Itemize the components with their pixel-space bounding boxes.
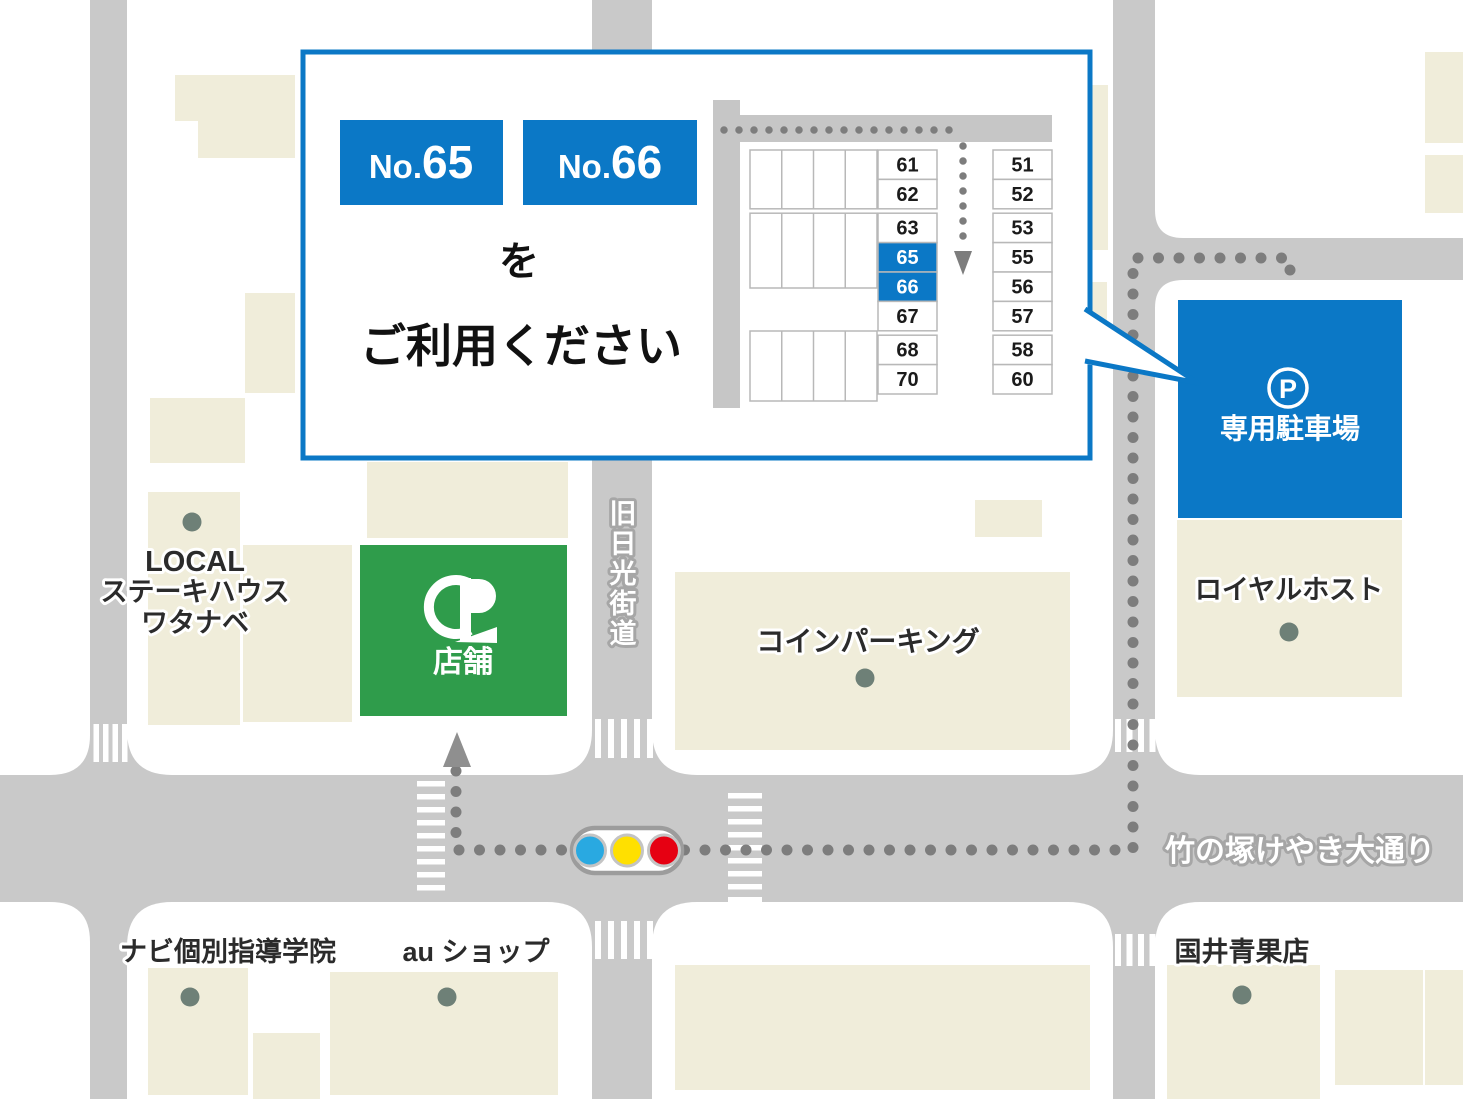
svg-text:68: 68	[896, 340, 918, 362]
building-royal-host	[1177, 520, 1402, 697]
traffic-light-red	[649, 835, 680, 866]
map-canvas: P 専用駐車場 店舗 旧 日 光 街 道 竹の塚けやき大通り LOCAL	[0, 0, 1463, 1099]
svg-text:61: 61	[896, 155, 918, 177]
city-block	[0, 902, 90, 1099]
store-label: 店舗	[433, 646, 493, 679]
building	[253, 1033, 320, 1099]
callout-box	[303, 52, 1090, 458]
building	[1335, 970, 1423, 1085]
svg-text:63: 63	[896, 218, 918, 240]
crosswalk	[417, 781, 445, 891]
svg-text:66: 66	[896, 277, 918, 299]
building	[1425, 155, 1463, 213]
svg-text:旧: 旧	[610, 499, 637, 529]
building	[175, 75, 295, 121]
building	[198, 121, 295, 158]
parking-icon-letter: P	[1279, 374, 1297, 404]
svg-text:55: 55	[1011, 247, 1033, 269]
traffic-light-blue	[575, 835, 606, 866]
label-au-shop: au ショップ	[402, 937, 550, 967]
svg-text:日: 日	[610, 529, 637, 559]
marker-dot	[438, 988, 457, 1007]
marker-dot	[1233, 986, 1252, 1005]
traffic-light-yellow	[612, 835, 643, 866]
label-coin-parking: コインパーキング	[756, 626, 979, 657]
label-steakhouse-line1: LOCAL	[145, 546, 245, 578]
svg-text:60: 60	[1011, 369, 1033, 391]
building-navi-school	[148, 968, 248, 1095]
diagram-unnumbered-stalls	[750, 150, 877, 401]
svg-text:道: 道	[610, 618, 637, 649]
svg-text:53: 53	[1011, 218, 1033, 240]
building	[1425, 970, 1463, 1085]
building	[245, 293, 295, 393]
svg-text:62: 62	[896, 184, 918, 206]
traffic-light	[572, 828, 682, 873]
marker-dot	[1280, 623, 1299, 642]
city-block	[1155, 0, 1463, 238]
svg-text:65: 65	[896, 247, 918, 269]
building	[1425, 52, 1463, 143]
marker-dot	[181, 988, 200, 1007]
label-kunii-seika: 国井青果店	[1175, 937, 1310, 967]
diagram-left-wall	[713, 100, 740, 408]
building	[243, 545, 352, 722]
svg-text:52: 52	[1011, 184, 1033, 206]
parking-lot-label: 専用駐車場	[1220, 413, 1360, 444]
building	[150, 398, 245, 463]
building-coin-parking	[675, 572, 1070, 750]
label-steakhouse-line3: ワタナベ	[141, 608, 249, 638]
road-name-old-nikko: 旧 日 光 街 道	[609, 499, 637, 649]
callout-message: ご利用ください	[360, 320, 682, 372]
building	[975, 500, 1042, 537]
svg-text:51: 51	[1011, 155, 1033, 177]
marker-dot	[856, 669, 875, 688]
city-block	[0, 0, 90, 775]
callout-particle: を	[499, 240, 539, 284]
building-kunii-seika	[1167, 965, 1320, 1099]
svg-text:光: 光	[609, 559, 637, 589]
label-royal-host: ロイヤルホスト	[1195, 575, 1383, 605]
building	[675, 965, 1090, 1090]
svg-text:67: 67	[896, 306, 918, 328]
svg-text:56: 56	[1011, 277, 1033, 299]
label-steakhouse-line2: ステーキハウス	[101, 577, 290, 607]
svg-text:街: 街	[609, 589, 637, 619]
dedicated-parking-area	[1178, 300, 1402, 518]
road-name-keyaki: 竹の塚けやき大通り	[1165, 835, 1435, 868]
marker-dot	[183, 513, 202, 532]
svg-text:57: 57	[1011, 306, 1033, 328]
label-navi-school: ナビ個別指導学院	[120, 936, 336, 967]
svg-text:58: 58	[1011, 340, 1033, 362]
svg-text:70: 70	[896, 369, 918, 391]
building	[367, 462, 568, 538]
